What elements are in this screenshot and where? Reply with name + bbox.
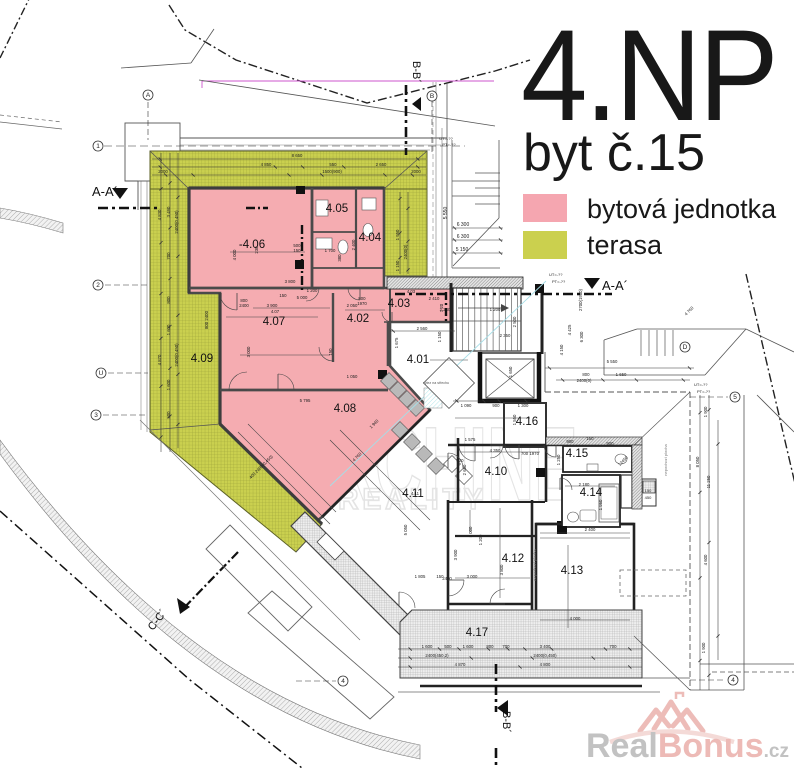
svg-text:1 900: 1 900	[701, 642, 706, 653]
svg-text:900: 900	[606, 441, 614, 446]
svg-text:3 400: 3 400	[540, 644, 551, 649]
svg-text:byt č.15: byt č.15	[523, 124, 705, 182]
svg-text:8 650: 8 650	[292, 153, 303, 158]
svg-text:1 250: 1 250	[556, 454, 561, 465]
svg-text:2 400: 2 400	[585, 527, 596, 532]
svg-text:6 300: 6 300	[579, 331, 584, 342]
svg-text:700: 700	[609, 644, 617, 649]
svg-text:RealBonus.cz: RealBonus.cz	[586, 727, 789, 765]
svg-text:5: 5	[733, 394, 737, 401]
svg-text:5 050: 5 050	[403, 524, 408, 535]
svg-text:4.02: 4.02	[347, 313, 369, 325]
svg-text:výlez na střechu: výlez na střechu	[423, 381, 449, 385]
svg-text:3 900: 3 900	[267, 303, 278, 308]
svg-text:4.09: 4.09	[191, 353, 213, 365]
svg-text:2: 2	[96, 282, 100, 289]
svg-text:150: 150	[279, 293, 287, 298]
svg-text:700: 700	[502, 644, 510, 649]
svg-text:2700(1980): 2700(1980)	[578, 288, 583, 311]
svg-text:terasa: terasa	[587, 230, 663, 260]
svg-text:4.04: 4.04	[359, 232, 382, 244]
svg-text:UT=-??: UT=-??	[439, 136, 453, 141]
svg-text:2400(0): 2400(0)	[577, 378, 592, 383]
svg-text:4 870: 4 870	[455, 662, 466, 667]
svg-text:11 250: 11 250	[706, 475, 711, 488]
svg-text:6 300: 6 300	[457, 222, 470, 228]
svg-text:900: 900	[492, 403, 500, 408]
svg-text:4 425: 4 425	[567, 324, 572, 335]
svg-text:3 000: 3 000	[467, 574, 478, 579]
svg-text:1 200: 1 200	[490, 307, 501, 312]
svg-text:4.13: 4.13	[561, 565, 583, 577]
svg-text:2400: 2400	[442, 576, 452, 581]
svg-text:1 600: 1 600	[422, 644, 433, 649]
svg-text:4 600: 4 600	[703, 554, 708, 565]
svg-text:1 600: 1 600	[166, 324, 171, 335]
svg-text:D: D	[683, 344, 688, 351]
svg-text:1 200: 1 200	[478, 534, 483, 545]
svg-text:3 800: 3 800	[285, 279, 296, 284]
svg-text:2400(0,450): 2400(0,450)	[174, 343, 179, 367]
svg-text:A-A´: A-A´	[602, 278, 628, 293]
svg-text:5 795: 5 795	[300, 398, 311, 403]
svg-text:1: 1	[96, 143, 100, 150]
svg-text:4 150: 4 150	[559, 344, 564, 355]
svg-text:900: 900	[566, 439, 574, 444]
svg-text:1 650: 1 650	[508, 366, 513, 377]
svg-text:150: 150	[586, 436, 594, 441]
svg-text:1 950: 1 950	[598, 499, 603, 510]
svg-text:1 050: 1 050	[347, 374, 358, 379]
svg-text:2400(0,450): 2400(0,450)	[174, 210, 179, 234]
svg-text:4.16: 4.16	[516, 416, 538, 428]
svg-text:1970: 1970	[357, 301, 367, 306]
svg-text:1 300: 1 300	[518, 403, 529, 408]
svg-text:2 650: 2 650	[462, 464, 467, 475]
svg-text:500: 500	[444, 644, 452, 649]
svg-text:4.03: 4.03	[388, 298, 410, 310]
svg-text:1 650: 1 650	[616, 372, 627, 377]
svg-text:2 500: 2 500	[512, 316, 517, 327]
svg-text:500: 500	[166, 411, 171, 419]
svg-text:4 850: 4 850	[261, 162, 272, 167]
svg-text:800 2400: 800 2400	[204, 310, 209, 329]
svg-text:4.08: 4.08	[334, 403, 356, 415]
svg-text:1 675: 1 675	[394, 337, 399, 348]
svg-text:550: 550	[329, 162, 337, 167]
svg-text:3 000: 3 000	[246, 346, 251, 357]
svg-text:4.11: 4.11	[402, 488, 424, 500]
svg-text:5 150: 5 150	[456, 247, 469, 253]
svg-text:4 000: 4 000	[570, 616, 581, 621]
svg-text:4 350: 4 350	[490, 448, 501, 453]
svg-text:1 150: 1 150	[437, 331, 442, 342]
svg-text:1 090: 1 090	[461, 403, 472, 408]
svg-text:1 150: 1 150	[395, 260, 400, 271]
svg-text:3: 3	[94, 412, 98, 419]
svg-text:5 550: 5 550	[443, 207, 449, 220]
svg-text:4.14: 4.14	[580, 487, 603, 499]
svg-text:4 870: 4 870	[157, 354, 162, 365]
svg-text:1 600: 1 600	[166, 379, 171, 390]
svg-text:PT=-??: PT=-??	[697, 389, 711, 394]
svg-text:B-B´: B-B´	[410, 61, 422, 83]
svg-text:bytová jednotka: bytová jednotka	[587, 194, 777, 224]
svg-text:PT=-??: PT=-??	[552, 279, 566, 284]
svg-text:1 900: 1 900	[703, 406, 708, 417]
svg-text:4: 4	[731, 677, 735, 684]
svg-text:2 650: 2 650	[376, 162, 387, 167]
svg-text:1 700: 1 700	[325, 248, 336, 253]
svg-text:4 000: 4 000	[232, 249, 237, 260]
svg-text:150: 150	[293, 248, 301, 253]
svg-text:920: 920	[456, 458, 464, 463]
svg-text:A: A	[146, 92, 151, 99]
svg-text:U: U	[99, 370, 104, 377]
svg-text:5 000: 5 000	[468, 526, 473, 537]
svg-text:2000: 2000	[411, 169, 421, 174]
svg-text:4.05: 4.05	[326, 203, 348, 215]
svg-text:5 550: 5 550	[607, 359, 618, 364]
svg-text:3 490: 3 490	[166, 206, 171, 217]
svg-text:1500(900): 1500(900)	[322, 169, 342, 174]
svg-text:5 000: 5 000	[297, 295, 308, 300]
svg-text:2 400: 2 400	[351, 239, 356, 250]
svg-text:150: 150	[328, 348, 333, 356]
svg-text:nepochozí plocha: nepochozí plocha	[532, 549, 537, 581]
svg-text:1 950: 1 950	[395, 229, 400, 240]
svg-text:4.12: 4.12	[502, 553, 524, 565]
svg-text:2400(450,2): 2400(450,2)	[425, 653, 449, 658]
svg-text:700 1970: 700 1970	[521, 451, 540, 456]
svg-text:A-A´: A-A´	[92, 184, 118, 199]
svg-text:1 805: 1 805	[415, 574, 426, 579]
svg-text:800: 800	[486, 644, 494, 649]
svg-text:800: 800	[582, 372, 590, 377]
svg-text:1 575: 1 575	[465, 437, 476, 442]
svg-text:450: 450	[645, 495, 652, 500]
svg-text:nepochozí plocha: nepochozí plocha	[663, 444, 668, 476]
svg-text:4.07: 4.07	[263, 316, 285, 328]
svg-text:-4.06: -4.06	[239, 239, 265, 251]
svg-text:1 600: 1 600	[463, 644, 474, 649]
svg-text:UT=-??: UT=-??	[694, 382, 708, 387]
svg-text:2400: 2400	[239, 303, 249, 308]
svg-text:B-B´: B-B´	[500, 711, 512, 733]
svg-text:4.10: 4.10	[485, 466, 507, 478]
svg-text:B: B	[430, 93, 434, 100]
svg-text:150: 150	[645, 488, 652, 493]
svg-text:4 830: 4 830	[157, 209, 162, 220]
svg-text:4: 4	[341, 678, 345, 685]
svg-text:2 560: 2 560	[417, 326, 428, 331]
svg-text:2400(0,450): 2400(0,450)	[533, 653, 557, 658]
svg-text:2 410: 2 410	[429, 296, 440, 301]
svg-text:380: 380	[337, 254, 342, 262]
svg-text:4 800: 4 800	[540, 662, 551, 667]
svg-text:6 300: 6 300	[457, 234, 470, 240]
svg-text:3 800: 3 800	[499, 564, 504, 575]
svg-text:8 050: 8 050	[695, 456, 700, 467]
svg-text:2400(0): 2400(0)	[403, 244, 408, 259]
svg-text:UT=-??: UT=-??	[549, 272, 563, 277]
svg-text:3 900: 3 900	[453, 549, 458, 560]
svg-text:4.15: 4.15	[566, 448, 588, 460]
svg-text:700: 700	[166, 252, 171, 260]
svg-text:4.17: 4.17	[466, 627, 488, 639]
svg-text:2000: 2000	[158, 169, 168, 174]
svg-text:2 350: 2 350	[500, 333, 511, 338]
svg-text:800: 800	[166, 296, 171, 304]
svg-text:4.07: 4.07	[271, 309, 280, 314]
svg-text:1 200: 1 200	[307, 288, 318, 293]
svg-text:4.01: 4.01	[407, 354, 429, 366]
